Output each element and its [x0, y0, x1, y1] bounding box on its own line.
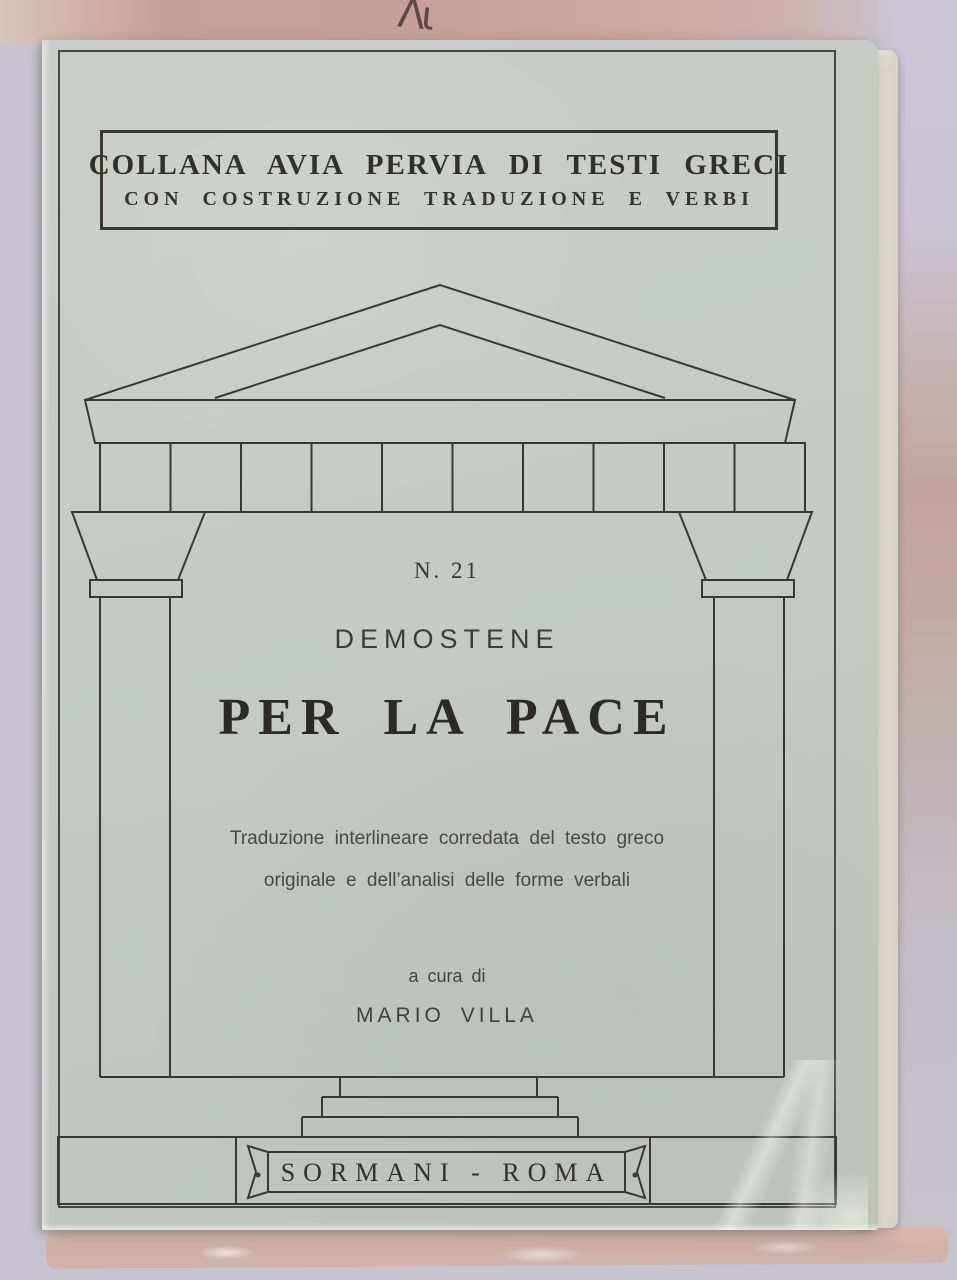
edited-by-label: a cura di [58, 966, 836, 987]
right-column [679, 512, 812, 1077]
subtitle-line-1: Traduzione interlineare corredata del te… [58, 828, 836, 850]
steps [100, 1077, 784, 1137]
book-behind-edge [46, 1225, 948, 1269]
background-top-band [0, 0, 900, 44]
book-cover: COLLANA AVIA PERVIA DI TESTI GRECI CON C… [42, 40, 878, 1230]
editor-name: MARIO VILLA [58, 1004, 836, 1028]
author-name: DEMOSTENE [58, 624, 836, 655]
subtitle-line-2: originale e dell’analisi delle forme ver… [58, 870, 836, 892]
left-column [72, 512, 205, 1077]
photo-of-book: { "photo": { "handwriting_marks": "Λι" }… [0, 0, 957, 1280]
book-title: PER LA PACE [58, 688, 836, 747]
pediment [85, 285, 795, 443]
publisher-name: SORMANI - ROMA [268, 1158, 625, 1188]
handwriting-marks: Λι [396, 0, 434, 40]
book-number: N. 21 [58, 558, 836, 584]
frieze [100, 443, 805, 512]
